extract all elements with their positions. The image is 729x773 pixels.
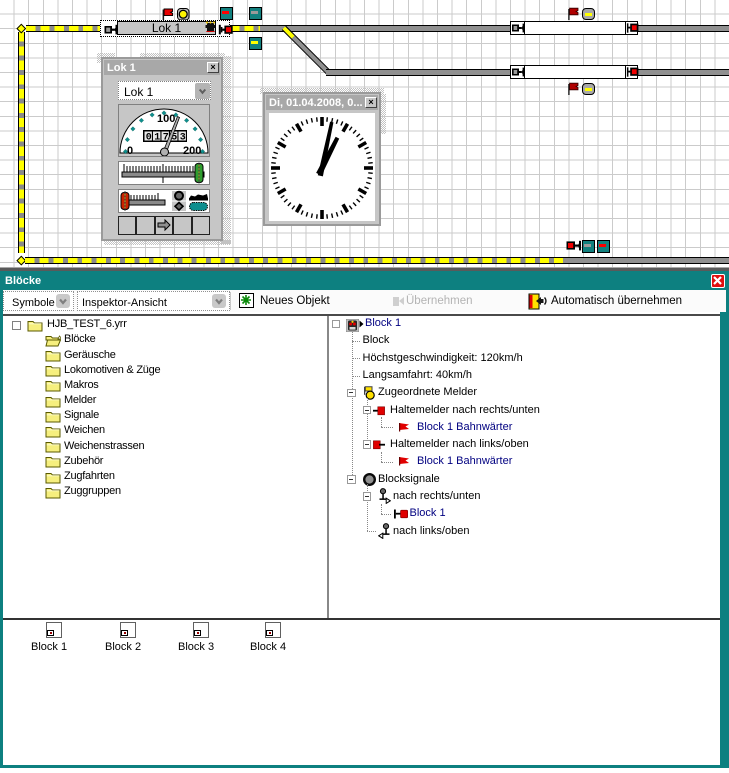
svg-text:1: 1 — [154, 133, 160, 144]
svg-text:0: 0 — [127, 145, 133, 156]
svg-text:0: 0 — [146, 133, 152, 144]
svg-text:3: 3 — [180, 133, 186, 144]
svg-text:100: 100 — [157, 113, 175, 125]
svg-text:200: 200 — [183, 145, 201, 156]
